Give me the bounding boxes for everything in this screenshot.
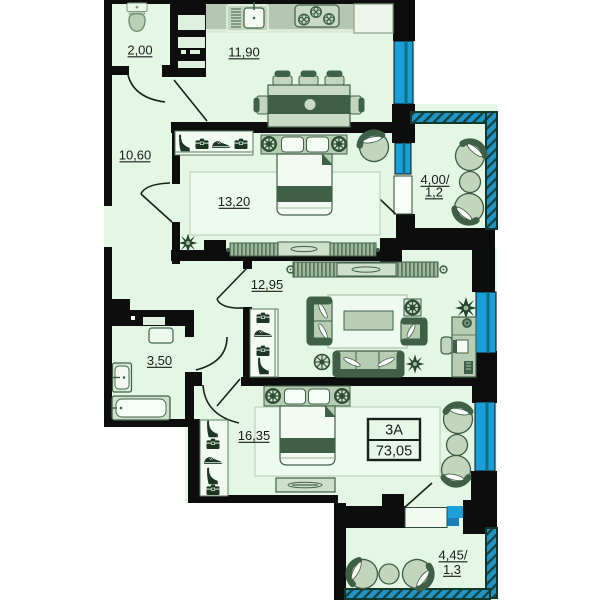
svg-text:2,00: 2,00 (127, 43, 152, 58)
svg-text:3A: 3A (385, 423, 403, 439)
svg-text:13,20: 13,20 (218, 194, 251, 209)
svg-text:3,50: 3,50 (147, 353, 172, 368)
svg-text:16,35: 16,35 (238, 428, 271, 443)
svg-text:10,60: 10,60 (119, 148, 152, 163)
svg-text:11,90: 11,90 (228, 45, 260, 60)
svg-text:12,95: 12,95 (251, 277, 284, 292)
svg-text:1,3: 1,3 (443, 562, 461, 577)
svg-text:73,05: 73,05 (376, 444, 412, 460)
svg-text:4,45/: 4,45/ (439, 548, 468, 563)
svg-text:1,2: 1,2 (425, 185, 443, 200)
